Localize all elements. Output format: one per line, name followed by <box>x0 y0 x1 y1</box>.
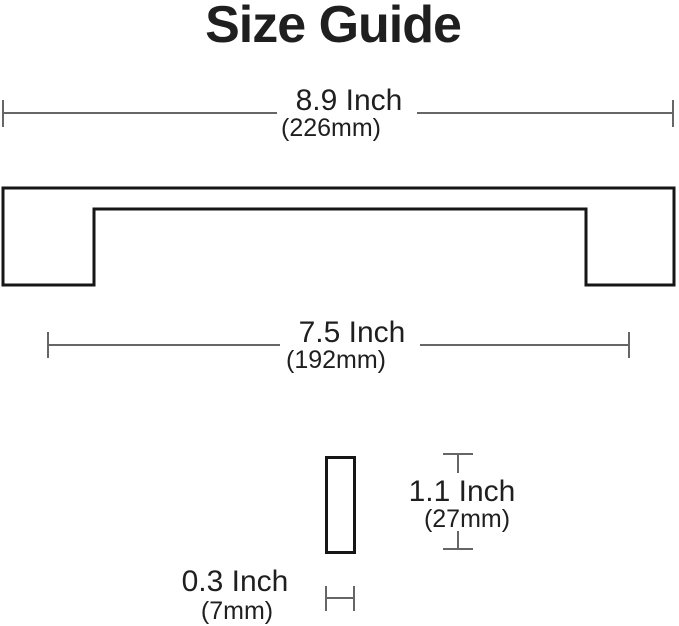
hole-spacing-line-right <box>420 344 629 346</box>
handle-outline-path <box>3 188 674 285</box>
hole-spacing-inch-label: 7.5 Inch <box>299 319 406 347</box>
height-dimension-bottom-bar <box>443 548 473 550</box>
thickness-mm-label: (7mm) <box>201 598 273 624</box>
hole-spacing-mm-label: (192mm) <box>286 347 386 373</box>
handle-cross-section-drawing <box>325 456 356 554</box>
size-guide-diagram: Size Guide 8.9 Inch (226mm) 7.5 Inch (19… <box>0 0 679 626</box>
height-dimension-bottom-stub <box>457 531 459 549</box>
hole-spacing-line-left <box>49 344 280 346</box>
thickness-dimension-line <box>325 597 355 599</box>
height-inch-label: 1.1 Inch <box>409 478 516 506</box>
height-dimension-top-stub <box>457 454 459 473</box>
thickness-inch-label: 0.3 Inch <box>182 568 289 596</box>
height-mm-label: (27mm) <box>424 506 510 532</box>
